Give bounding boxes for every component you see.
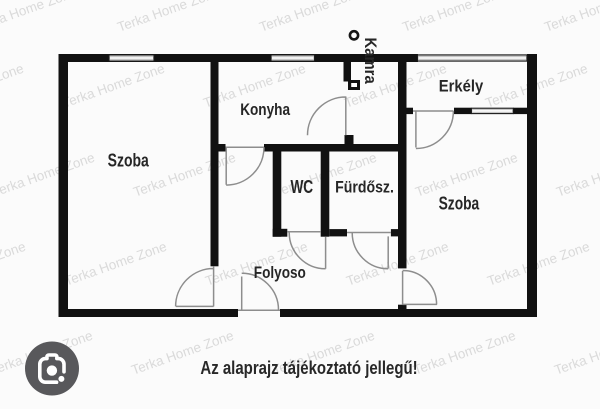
svg-text:Kamra: Kamra — [361, 37, 379, 83]
svg-text:Szoba: Szoba — [108, 151, 150, 171]
svg-text:Folyoso: Folyoso — [254, 263, 306, 282]
svg-text:Fürdősz.: Fürdősz. — [335, 178, 394, 196]
svg-text:WC: WC — [290, 177, 313, 198]
svg-text:Konyha: Konyha — [240, 100, 290, 119]
svg-text:Erkély: Erkély — [439, 77, 484, 95]
svg-text:Az alaprajz tájékoztató jelleg: Az alaprajz tájékoztató jellegű! — [200, 357, 417, 378]
svg-text:Szoba: Szoba — [439, 194, 480, 214]
